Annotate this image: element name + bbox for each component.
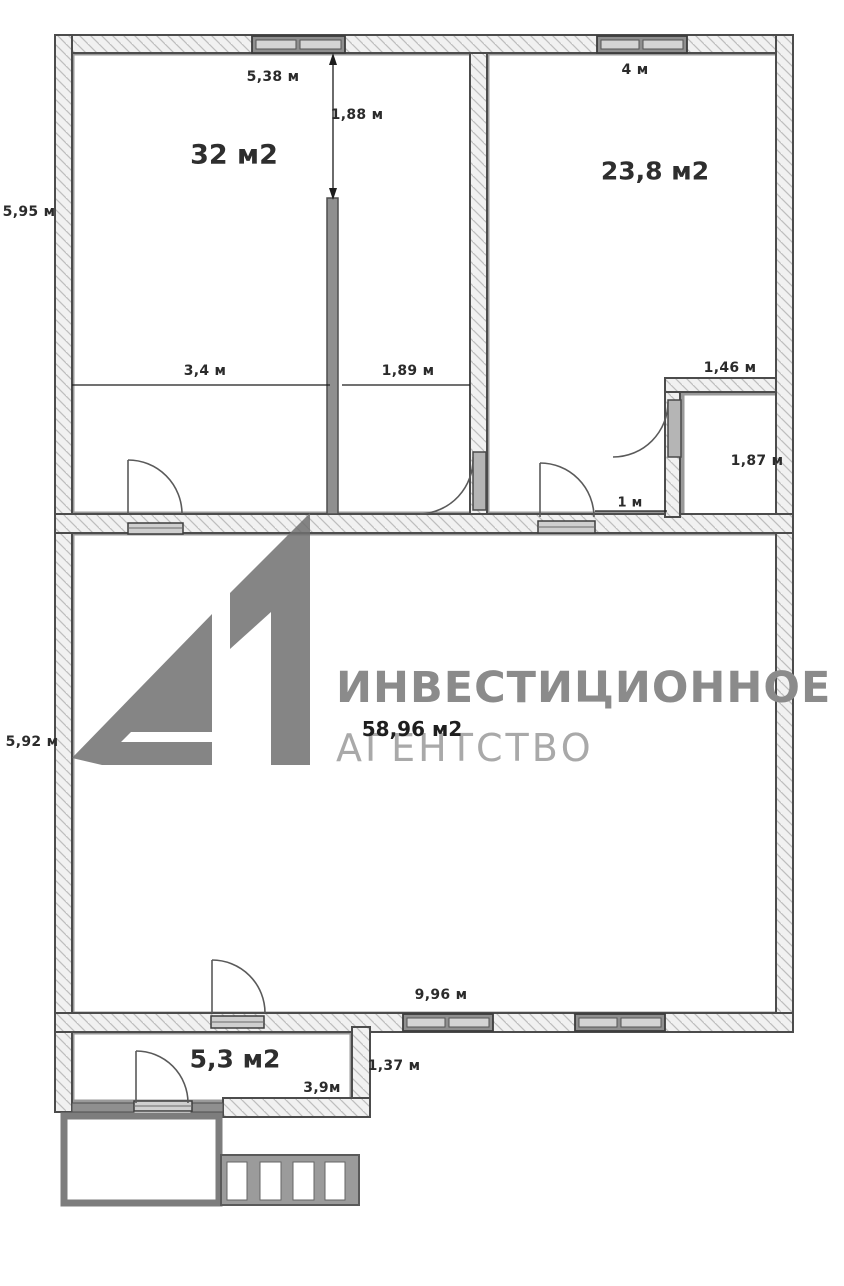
room-interiors [72,53,778,1102]
watermark-agency-line1: ИНВЕСТИЦИОННОЕ [336,663,831,713]
dim-label-5-38: 5,38 м [247,69,300,85]
wall-partition-top-rooms [470,53,487,514]
dim-label-5-95: 5,95 м [3,204,56,220]
porch-outline [64,1116,219,1203]
step-tread [293,1162,314,1200]
dim-label-1-88: 1,88 м [331,107,384,123]
dim-label-1-87: 1,87 м [731,453,784,469]
dim-label-5-92: 5,92 м [6,734,59,750]
room-label-32: 32 м2 [190,140,278,171]
room-label-23-8: 23,8 м2 [601,157,709,186]
porch [64,1116,219,1203]
wall-closet-top [665,378,776,392]
room-top-left-floor [72,53,473,514]
dim-label-4: 4 м [622,62,649,78]
wall-entry-thin-right [191,1103,223,1112]
wall-left [55,35,72,1112]
wall-stub [327,198,338,514]
wall-entry-bottom [223,1098,370,1117]
step-tread [325,1162,345,1200]
door-panel-closet [668,400,681,457]
dim-label-1-46: 1,46 м [704,360,757,376]
window-bottom-right-icon [575,1014,665,1031]
dim-label-1-37: 1,37 м [368,1058,421,1074]
room-label-5-3: 5,3 м2 [190,1045,281,1074]
steps [221,1155,359,1205]
step-tread [260,1162,281,1200]
wall-entry-thin-left [72,1103,134,1112]
dim-label-9-96: 9,96 м [415,987,468,1003]
room-label-58-96: 58,96 м2 [362,717,463,741]
dim-label-3-4: 3,4 м [184,363,227,379]
floor-plan-drawing [0,0,844,1286]
room-main-floor [72,533,778,1014]
door-panel-corridor [473,452,486,510]
step-tread [227,1162,247,1200]
dim-label-1-89: 1,89 м [382,363,435,379]
window-bottom-left-icon [403,1014,493,1031]
dim-label-1-m: 1 м [617,496,642,511]
dim-label-3-9: 3,9м [303,1080,340,1096]
window-top-right-icon [597,36,687,53]
window-top-left-icon [252,36,345,53]
floor-plan: 32 м2 23,8 м2 58,96 м2 5,3 м2 5,38 м 1,8… [0,0,844,1286]
